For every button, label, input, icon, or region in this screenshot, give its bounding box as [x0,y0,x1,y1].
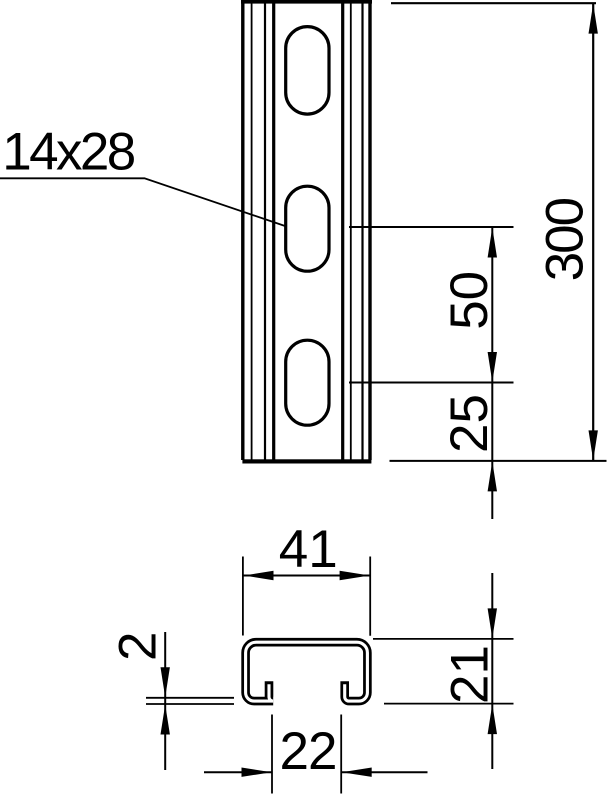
svg-text:25: 25 [440,394,499,453]
svg-text:21: 21 [440,645,499,704]
svg-text:22: 22 [280,722,337,781]
svg-text:2: 2 [109,632,168,661]
svg-text:300: 300 [536,198,595,281]
svg-text:50: 50 [440,271,499,330]
svg-text:41: 41 [279,520,338,579]
svg-text:14x28: 14x28 [2,123,135,182]
